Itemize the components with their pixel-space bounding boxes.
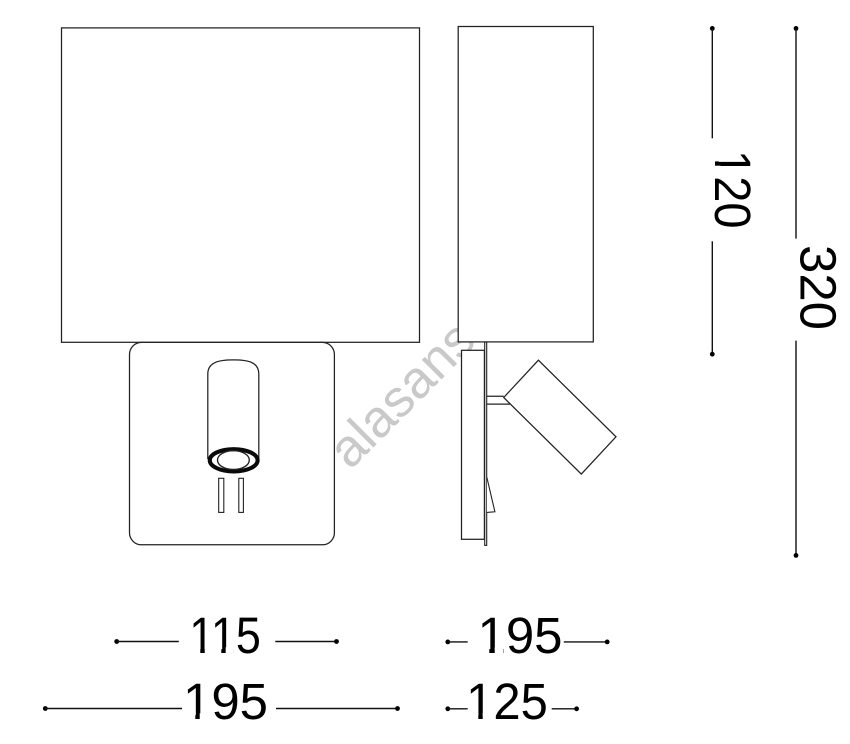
svg-text:195: 195 (183, 673, 268, 730)
svg-text:195: 195 (477, 607, 562, 664)
svg-text:120: 120 (703, 150, 759, 229)
svg-text:115: 115 (189, 607, 261, 664)
svg-text:320: 320 (789, 245, 846, 330)
svg-text:125: 125 (466, 673, 548, 730)
